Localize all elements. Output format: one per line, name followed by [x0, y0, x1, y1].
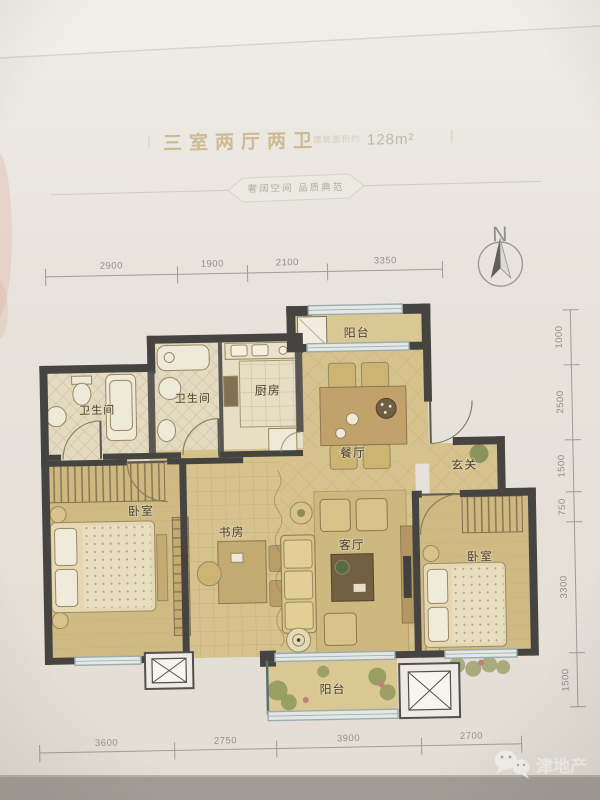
room-label-foyer: 玄关	[451, 457, 477, 472]
room-label-balcony-top: 阳台	[344, 325, 370, 340]
title-right-bar: |	[450, 127, 454, 143]
brand-name: 津地产	[536, 756, 587, 776]
dim-right-1: 2500	[555, 390, 566, 413]
room-label-balcony-bottom: 阳台	[319, 681, 345, 696]
dim-top-2: 2100	[276, 257, 299, 268]
bay-window-left	[145, 652, 194, 689]
dim-bottom-1: 2750	[214, 735, 237, 746]
armchair	[320, 499, 351, 532]
dim-bottom-0: 3600	[95, 738, 118, 749]
floor-lamp	[286, 628, 310, 652]
floorplan-photo: | 三室两厅两卫 建筑面积约 128m² | 奢阔空间 品质典范 N 2900 …	[0, 0, 600, 800]
tagline: 奢阔空间 品质典范	[248, 181, 345, 195]
dim-bottom-2: 3900	[337, 733, 360, 744]
bed-bench	[157, 535, 168, 601]
armchair	[324, 613, 357, 646]
sink-left	[46, 406, 66, 426]
coffee-table	[331, 554, 374, 602]
armchair	[356, 498, 388, 531]
area-value: 128m²	[367, 131, 415, 149]
dim-top-0: 2900	[100, 260, 123, 271]
page-title: 三室两厅两卫	[163, 129, 319, 155]
toilet-left	[72, 376, 93, 405]
title-left-bar: |	[147, 133, 151, 149]
room-label-bath-mid: 卫生间	[175, 391, 211, 406]
kitchen-counter	[225, 342, 295, 359]
tv-cabinet	[400, 526, 414, 623]
shaft-box	[399, 663, 460, 718]
dim-right-4: 3300	[558, 575, 569, 598]
room-label-bath-left: 卫生间	[79, 403, 115, 418]
dim-right-5: 1500	[560, 668, 571, 691]
wardrobe-right-bedroom	[462, 496, 523, 533]
room-label-living: 客厅	[339, 537, 365, 552]
dim-top-1: 1900	[201, 258, 224, 269]
dim-top-3: 3350	[374, 255, 397, 266]
fridge	[269, 428, 297, 454]
dim-right-3: 750	[557, 498, 568, 516]
area-note: 建筑面积约	[313, 134, 361, 145]
room-label-bedroom-right: 卧室	[467, 548, 493, 563]
room-label-bedroom-left: 卧室	[128, 503, 154, 518]
kitchen-cabinet	[224, 376, 239, 406]
room-label-dining: 餐厅	[340, 445, 366, 460]
floorplan-canvas: | 三室两厅两卫 建筑面积约 128m² | 奢阔空间 品质典范 N 2900 …	[0, 0, 600, 800]
toilet-mid	[157, 419, 175, 441]
dim-bottom-3: 2700	[460, 731, 483, 742]
dim-right-0: 1000	[554, 325, 565, 348]
room-label-study: 书房	[218, 524, 244, 539]
bed-left	[50, 505, 168, 629]
bathtub-mid	[157, 345, 209, 371]
dim-right-2: 1500	[556, 454, 567, 477]
room-label-kitchen: 厨房	[255, 382, 281, 397]
living-room-set	[280, 490, 415, 656]
